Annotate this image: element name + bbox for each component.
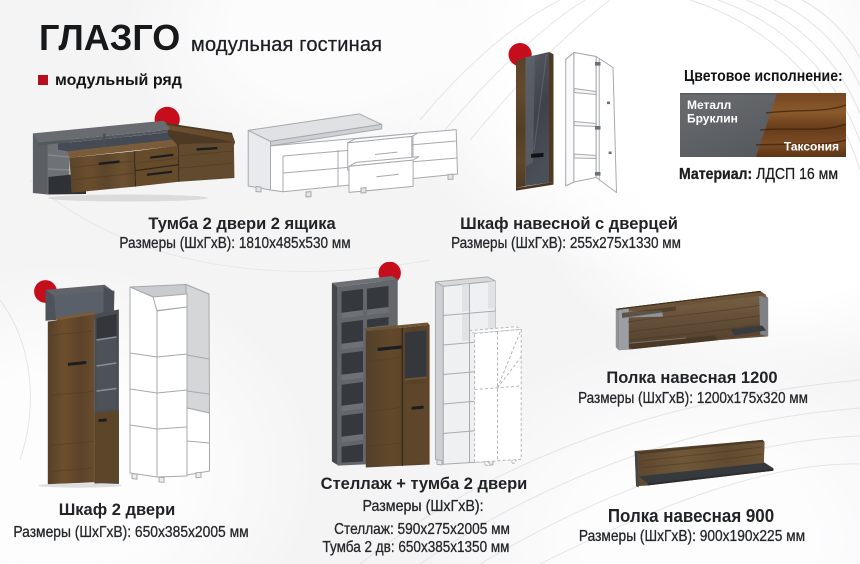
svg-text:Бруклин: Бруклин: [687, 112, 738, 126]
svg-text:Таксония: Таксония: [784, 140, 839, 154]
svg-text:Металл: Металл: [687, 98, 731, 112]
